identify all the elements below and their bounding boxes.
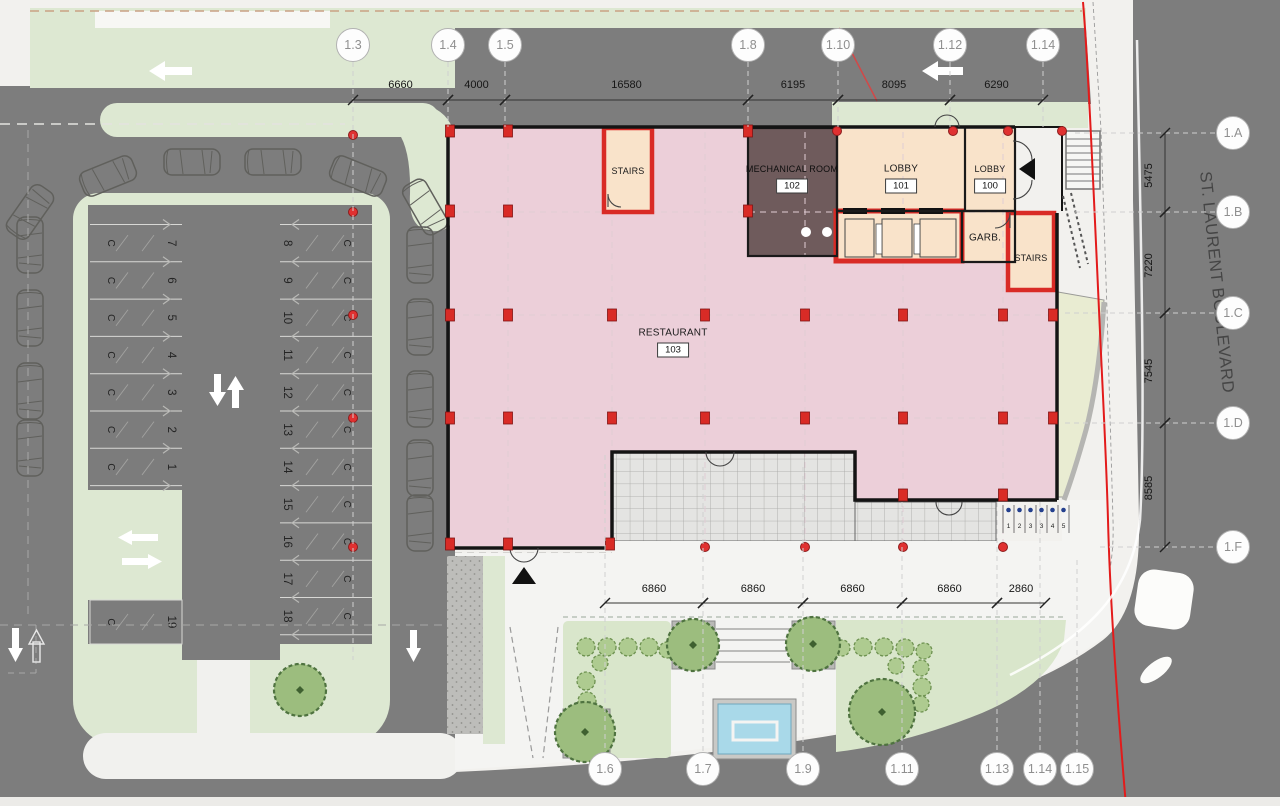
column-marker: [446, 412, 455, 424]
parking-stall-number: C: [105, 314, 116, 321]
parking-stall-number: 6: [165, 277, 177, 283]
grid-bubble-1.9: 1.9: [786, 752, 820, 786]
dimension-value: 6860: [642, 583, 666, 595]
grid-bubble-1.C: 1.C: [1216, 296, 1250, 330]
bike-stall-number: 4: [1051, 523, 1055, 530]
dimension-value: 6195: [781, 79, 805, 91]
parking-stall-number: 11: [281, 349, 293, 361]
column-marker: [899, 412, 908, 424]
grid-bubble-1.B: 1.B: [1216, 195, 1250, 229]
elevator-bank: [836, 208, 962, 261]
grid-bubble-1.14: 1.14: [1023, 752, 1057, 786]
grid-bubble-1.13: 1.13: [980, 752, 1014, 786]
parking-stall-number: C: [341, 613, 352, 620]
column-marker: [606, 538, 615, 550]
parking-stall-number: 4: [165, 352, 177, 359]
column-marker: [1049, 412, 1058, 424]
column-marker: [999, 412, 1008, 424]
column-dot: [999, 543, 1008, 552]
bike-stall-number: 1: [1007, 523, 1011, 530]
room-label-stairs-right: STAIRS: [1014, 253, 1047, 263]
parking-stall-number: C: [341, 501, 352, 508]
room-number-lobby-101: 101: [885, 179, 917, 194]
parking-stall-number: C: [341, 426, 352, 433]
dimension-value: 5475: [1143, 163, 1155, 187]
column-marker: [504, 309, 513, 321]
parking-stall-number: 17: [281, 572, 293, 585]
grid-bubble-1.6: 1.6: [588, 752, 622, 786]
parking-stall-number: 14: [281, 461, 293, 474]
parking-stall-number: C: [341, 575, 352, 582]
room-number-mechanical: 102: [776, 179, 808, 194]
parking-stall-number: 13: [281, 423, 293, 436]
column-marker: [504, 205, 513, 217]
grid-bubble-1.D: 1.D: [1216, 406, 1250, 440]
parking-stall-number: 8: [281, 240, 293, 246]
column-marker: [446, 309, 455, 321]
parking-stall-number: 16: [281, 535, 293, 548]
bike-dot: [1050, 508, 1055, 513]
room-number-lobby-100: 100: [974, 179, 1006, 194]
grid-bubble-1.5: 1.5: [488, 28, 522, 62]
bike-stall-number: 2: [1018, 523, 1022, 530]
parking-stall-number: C: [105, 463, 116, 470]
parking-stall-number: 5: [165, 315, 177, 321]
dimension-value: 2860: [1009, 583, 1033, 595]
grid-bubble-1.12: 1.12: [933, 28, 967, 62]
parking-stall-number: C: [105, 351, 116, 358]
site-plan: 7C6C5C4C3C2C1C8C9C10C11C12C13C14C15C16C1…: [0, 0, 1280, 806]
column-marker: [999, 309, 1008, 321]
parking-stall-number: 2: [165, 426, 177, 432]
dimension-value: 6660: [388, 79, 412, 91]
parking-stall-number: C: [341, 463, 352, 470]
bike-stall-number: 3: [1040, 523, 1044, 530]
dimension-value: 8095: [882, 79, 906, 91]
dimension-value: 6860: [741, 583, 765, 595]
parking-stall-number: 3: [165, 389, 177, 395]
parking-stall-number: 12: [281, 386, 293, 399]
bike-dot: [1061, 508, 1066, 513]
parking-stall-number: 15: [281, 498, 293, 511]
parking-stall-number: C: [341, 240, 352, 247]
dimension-value: 4000: [464, 79, 488, 91]
column-marker: [446, 125, 455, 137]
column-marker: [899, 309, 908, 321]
column-dot: [1004, 127, 1013, 136]
column-dot: [801, 543, 810, 552]
dimension-value: 6860: [937, 583, 961, 595]
grid-bubble-1.11: 1.11: [885, 752, 919, 786]
room-label-lobby-101: LOBBY: [884, 164, 918, 175]
parking-stall-number: C: [105, 277, 116, 284]
parking-stall-number: C: [341, 389, 352, 396]
parking-stall-number: 10: [281, 311, 293, 324]
column-dot: [833, 127, 842, 136]
column-marker: [701, 412, 710, 424]
parking-stall-number: 7: [165, 240, 177, 246]
grid-bubble-1.8: 1.8: [731, 28, 765, 62]
column-dot: [899, 543, 908, 552]
room-label-stairs-upper: STAIRS: [611, 166, 644, 176]
column-dot: [1058, 127, 1067, 136]
parking-stall-number: C: [105, 240, 116, 247]
dimension-value: 7545: [1143, 359, 1155, 383]
mech-equipment-dot: [801, 227, 811, 237]
column-marker: [899, 489, 908, 501]
grid-bubble-1.7: 1.7: [686, 752, 720, 786]
column-marker: [608, 309, 617, 321]
parking-stall-number: 9: [281, 277, 293, 283]
grid-bubble-1.4: 1.4: [431, 28, 465, 62]
dimension-value: 8585: [1143, 476, 1155, 500]
room-number-restaurant: 103: [657, 343, 689, 358]
column-marker: [608, 412, 617, 424]
dimension-value: 16580: [611, 79, 642, 91]
column-marker: [744, 205, 753, 217]
grid-bubble-1.F: 1.F: [1216, 530, 1250, 564]
column-marker: [446, 538, 455, 550]
column-dot: [949, 127, 958, 136]
dimension-value: 6290: [984, 79, 1008, 91]
parking-stall-number: C: [341, 277, 352, 284]
bike-dot: [1028, 508, 1033, 513]
bike-dot: [1039, 508, 1044, 513]
bike-stall-number: 3: [1029, 523, 1033, 530]
column-marker: [701, 309, 710, 321]
room-label-garbage: GARB.: [969, 233, 1001, 244]
parking-stall-number: C: [341, 351, 352, 358]
grid-bubble-1.3: 1.3: [336, 28, 370, 62]
column-marker: [446, 205, 455, 217]
column-marker: [504, 412, 513, 424]
parking-stall-number: 19: [165, 616, 177, 629]
parking-stall-number: 18: [281, 610, 293, 623]
room-label-mechanical: MECHANICAL ROOM: [746, 164, 838, 174]
dimension-value: 6860: [840, 583, 864, 595]
grid-bubble-1.15: 1.15: [1060, 752, 1094, 786]
bike-dot: [1017, 508, 1022, 513]
column-dot: [701, 543, 710, 552]
parking-stall-number: 1: [165, 464, 177, 470]
column-marker: [999, 489, 1008, 501]
page-edge: [0, 797, 1280, 806]
grid-bubble-1.A: 1.A: [1216, 116, 1250, 150]
column-marker: [801, 412, 810, 424]
column-marker: [504, 538, 513, 550]
parking-stall-number: C: [105, 389, 116, 396]
column-marker: [1049, 309, 1058, 321]
site-plan-drawing: 7C6C5C4C3C2C1C8C9C10C11C12C13C14C15C16C1…: [0, 0, 1280, 806]
reflecting-pool: [713, 699, 796, 759]
grid-bubble-1.14: 1.14: [1026, 28, 1060, 62]
dimension-value: 7220: [1143, 253, 1155, 277]
column-marker: [801, 309, 810, 321]
parking-stall-number: C: [105, 426, 116, 433]
mech-equipment-dot: [822, 227, 832, 237]
bike-dot: [1006, 508, 1011, 513]
room-label-lobby-100: LOBBY: [974, 164, 1005, 174]
room-label-restaurant: RESTAURANT: [638, 328, 707, 339]
grid-bubble-1.10: 1.10: [821, 28, 855, 62]
bike-stall-number: 5: [1062, 523, 1066, 530]
